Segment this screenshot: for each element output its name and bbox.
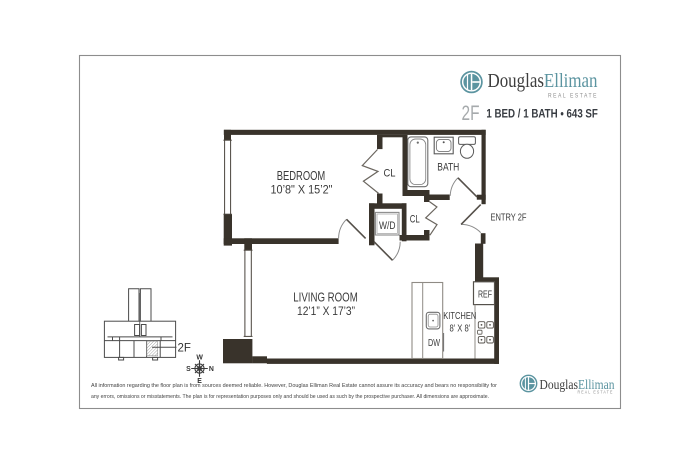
svg-text:BATH: BATH [437, 161, 459, 173]
svg-text:2F: 2F [462, 102, 480, 125]
svg-text:N: N [209, 366, 214, 373]
svg-text:8’ X 8’: 8’ X 8’ [450, 324, 471, 335]
svg-text:CL: CL [384, 168, 396, 180]
svg-text:any errors, omissions or misst: any errors, omissions or misstatements. … [91, 394, 489, 400]
svg-text:REF: REF [478, 290, 492, 301]
svg-text:CL: CL [410, 213, 420, 225]
svg-text:REAL ESTATE: REAL ESTATE [578, 389, 614, 395]
svg-text:S: S [186, 366, 191, 373]
svg-text:LIVING ROOM: LIVING ROOM [293, 291, 358, 305]
svg-text:W/D: W/D [379, 220, 396, 232]
svg-text:REAL ESTATE: REAL ESTATE [548, 93, 598, 100]
svg-text:10’8" X 15’2": 10’8" X 15’2" [271, 183, 333, 197]
svg-text:12’1” X 17’3”: 12’1” X 17’3” [297, 304, 355, 318]
svg-text:1 BED / 1 BATH • 643 SF: 1 BED / 1 BATH • 643 SF [486, 107, 598, 121]
svg-text:All information regarding the: All information regarding the floor plan… [91, 383, 497, 389]
svg-text:DW: DW [428, 338, 440, 349]
svg-text:KITCHEN: KITCHEN [443, 311, 476, 322]
svg-text:2F: 2F [178, 343, 191, 355]
svg-text:ENTRY 2F: ENTRY 2F [491, 213, 527, 224]
svg-text:W: W [196, 354, 203, 361]
svg-text:BEDROOM: BEDROOM [277, 169, 326, 183]
svg-text:DouglasElliman: DouglasElliman [488, 70, 598, 92]
